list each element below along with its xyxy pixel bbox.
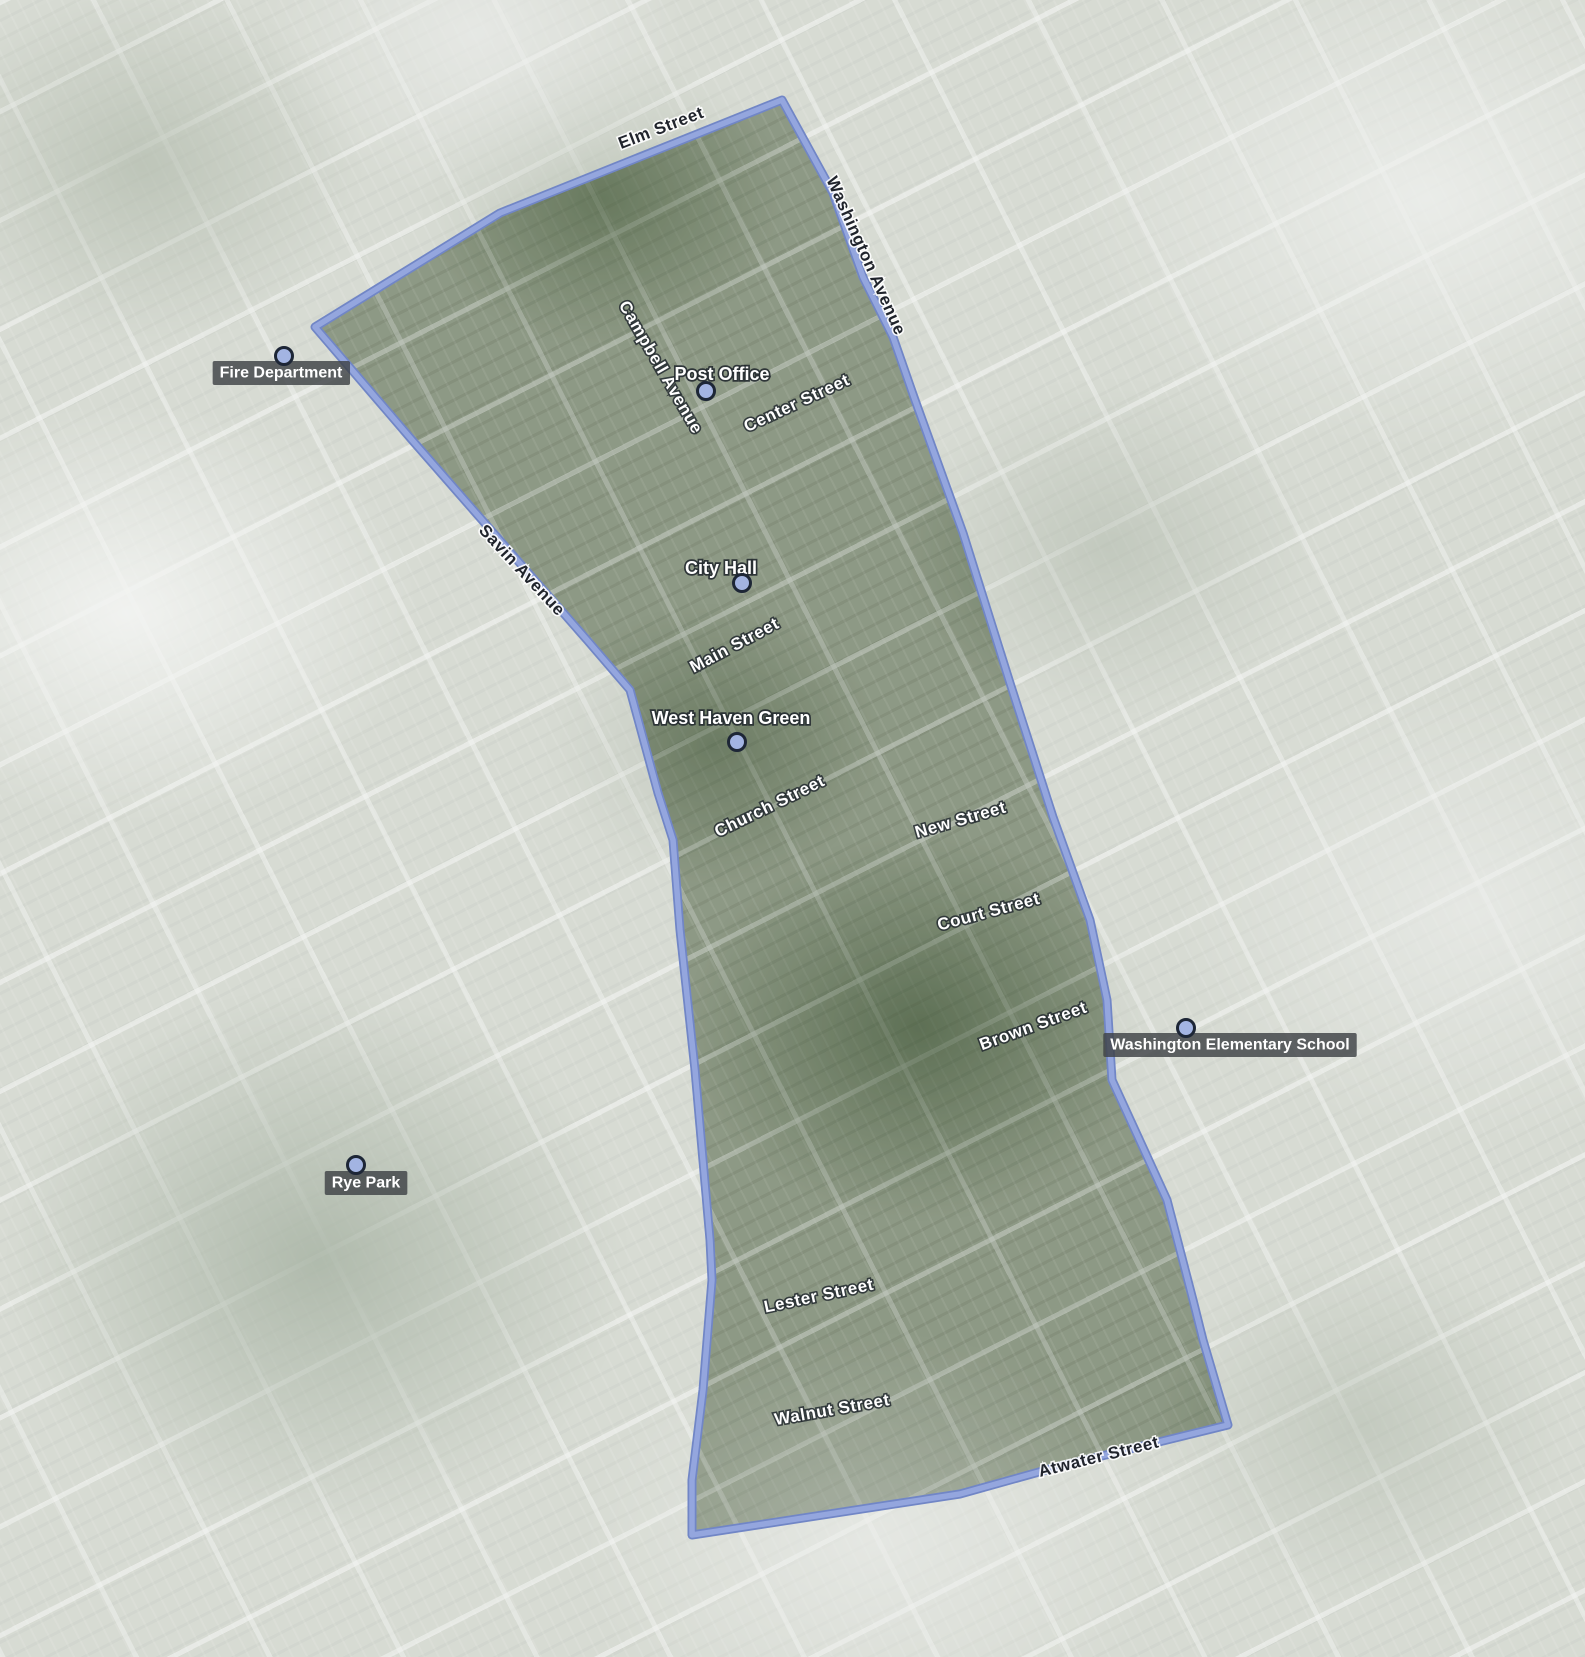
map-canvas[interactable]: Elm StreetWashington AvenueCampbell Aven… [0, 0, 1585, 1657]
poi-label-west-haven-green: West Haven Green [652, 708, 811, 728]
poi-marker-fire-department-icon[interactable] [276, 348, 293, 365]
poi-label-washington-elementary-school: Washington Elementary School [1110, 1037, 1349, 1054]
poi-marker-post-office-icon[interactable] [698, 383, 715, 400]
poi-label-fire-department: Fire Department [220, 365, 343, 382]
poi-marker-washington-elementary-school-icon[interactable] [1178, 1020, 1195, 1037]
poi-marker-west-haven-green-icon[interactable] [729, 734, 746, 751]
poi-marker-city-hall-icon[interactable] [734, 575, 751, 592]
poi-label-post-office: Post Office [674, 364, 769, 384]
poi-marker-rye-park-icon[interactable] [348, 1157, 365, 1174]
poi-label-rye-park: Rye Park [332, 1175, 401, 1192]
map-overlay: Elm StreetWashington AvenueCampbell Aven… [0, 0, 1585, 1657]
